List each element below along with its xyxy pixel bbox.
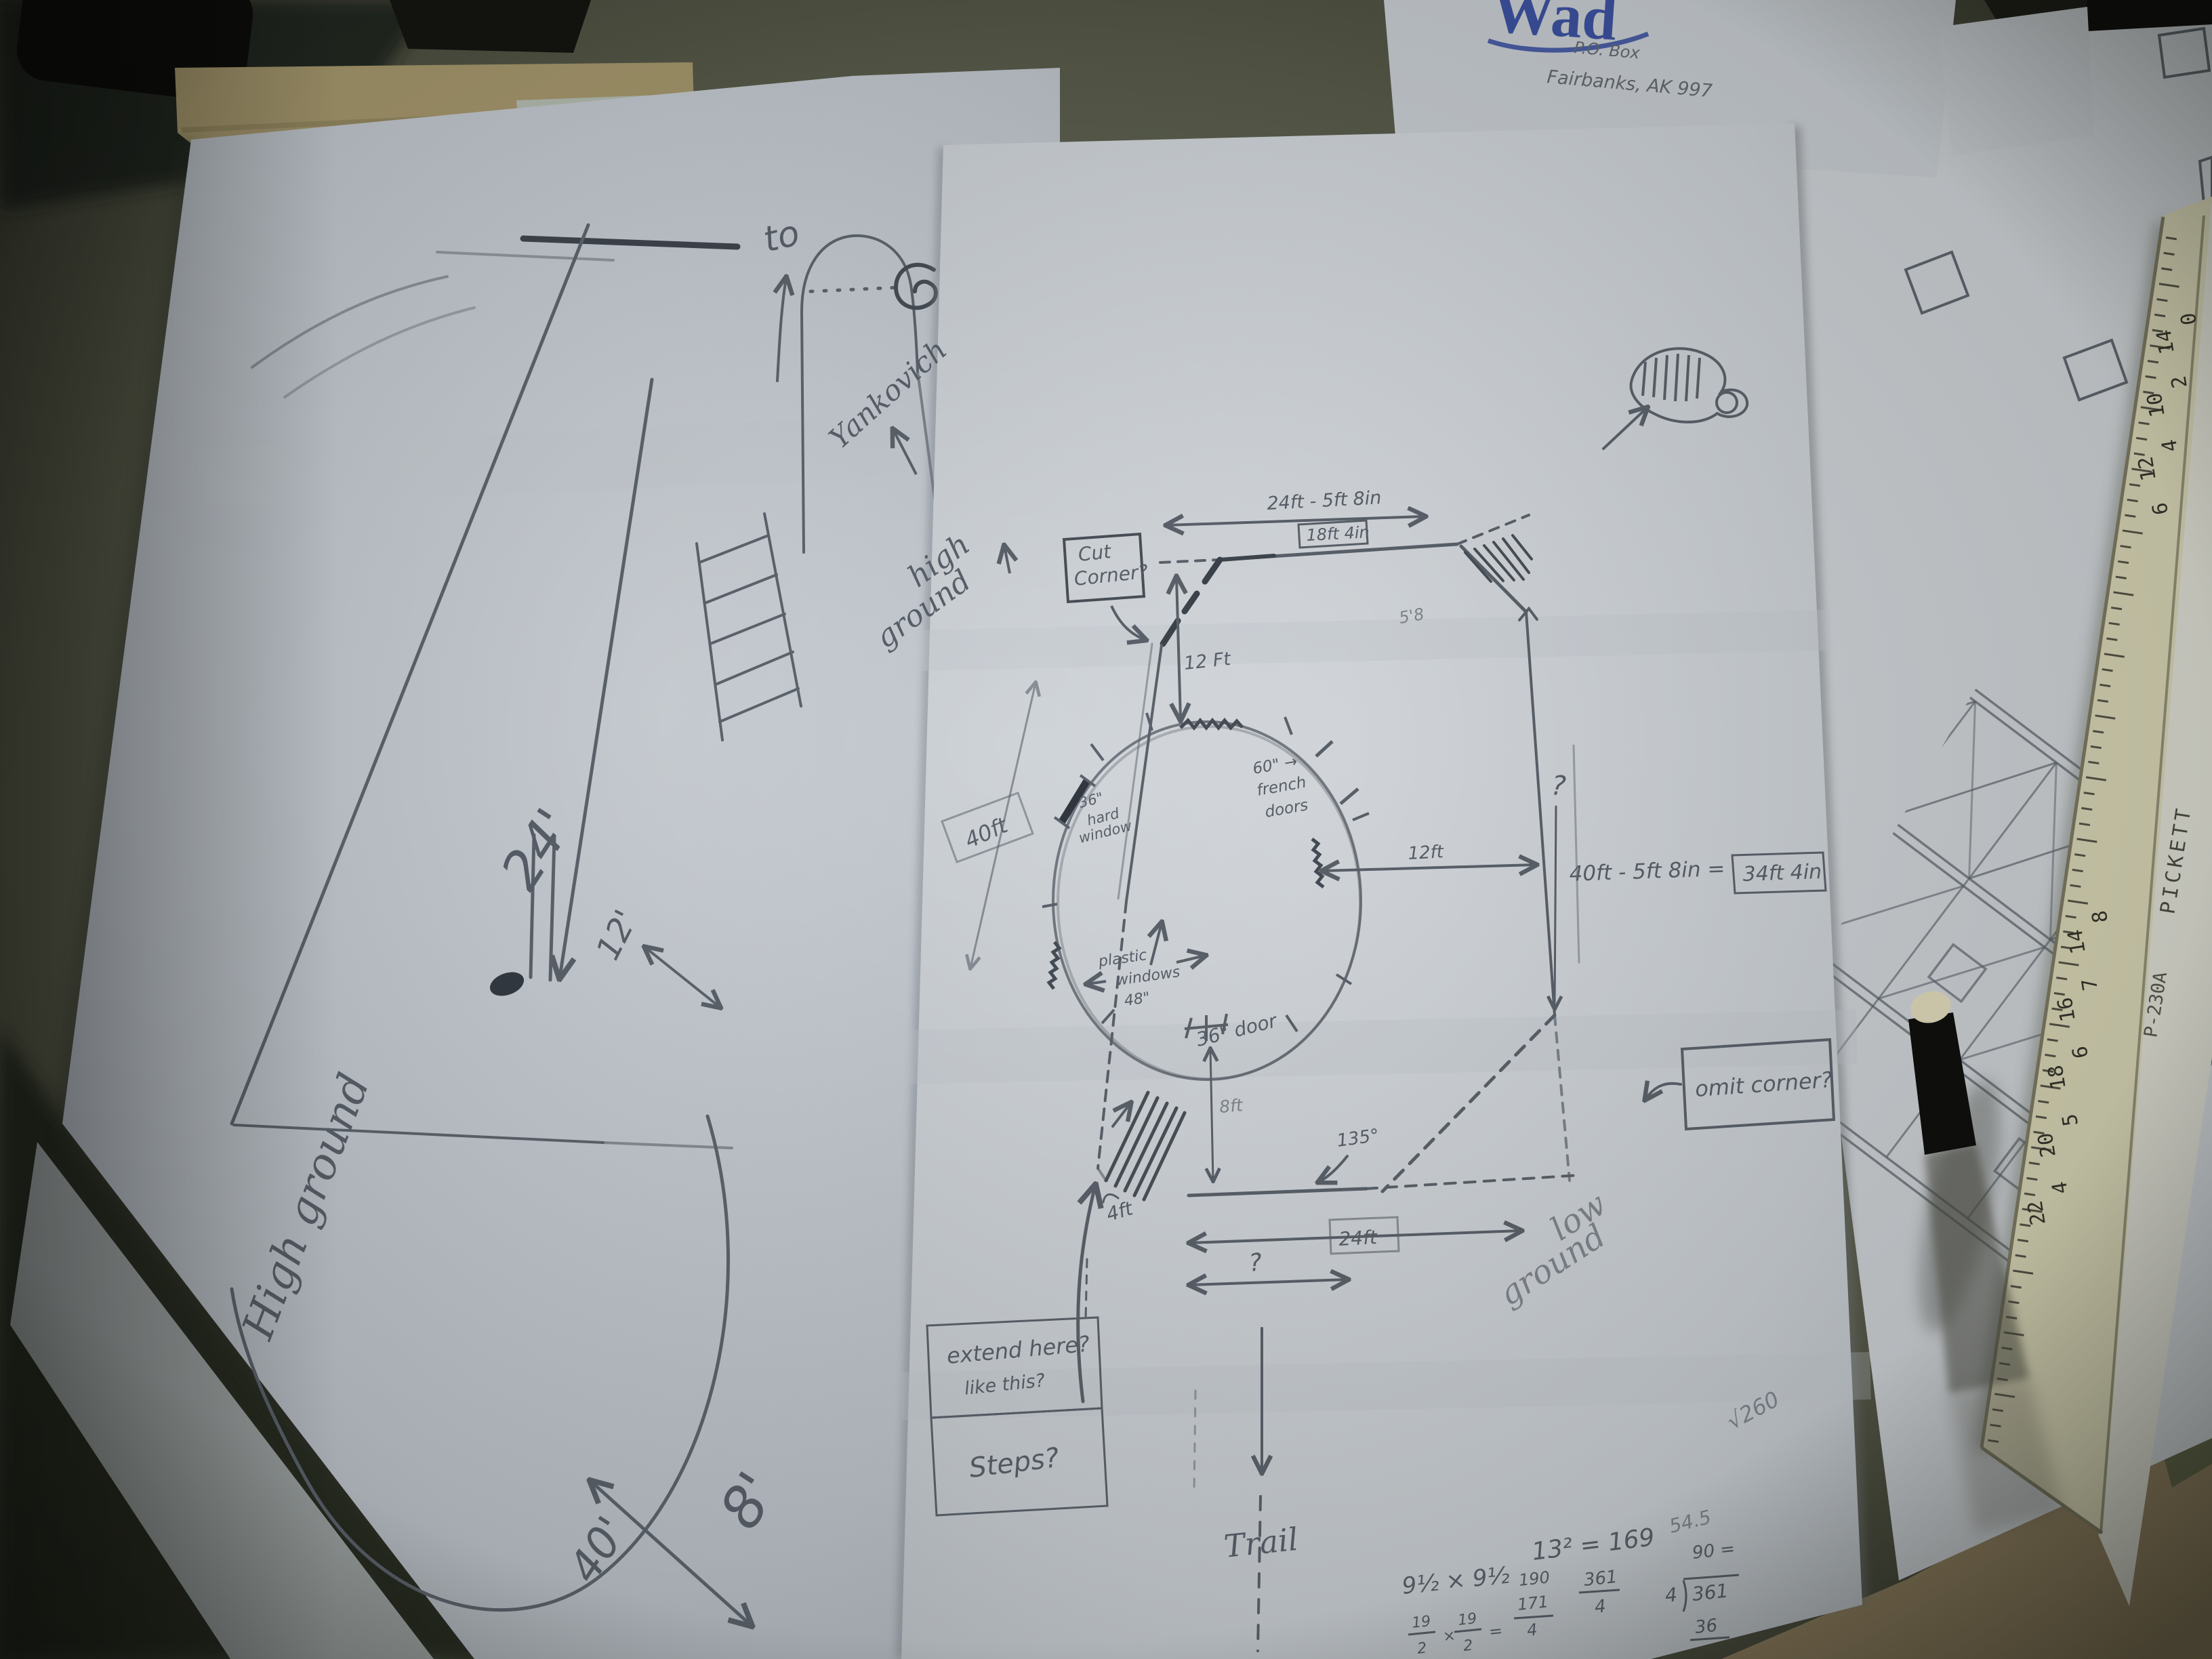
vignette	[0, 0, 2212, 1659]
desk-photo: to 24' 12' 8' 40' High ground Wad P.O. B…	[0, 0, 2212, 1659]
